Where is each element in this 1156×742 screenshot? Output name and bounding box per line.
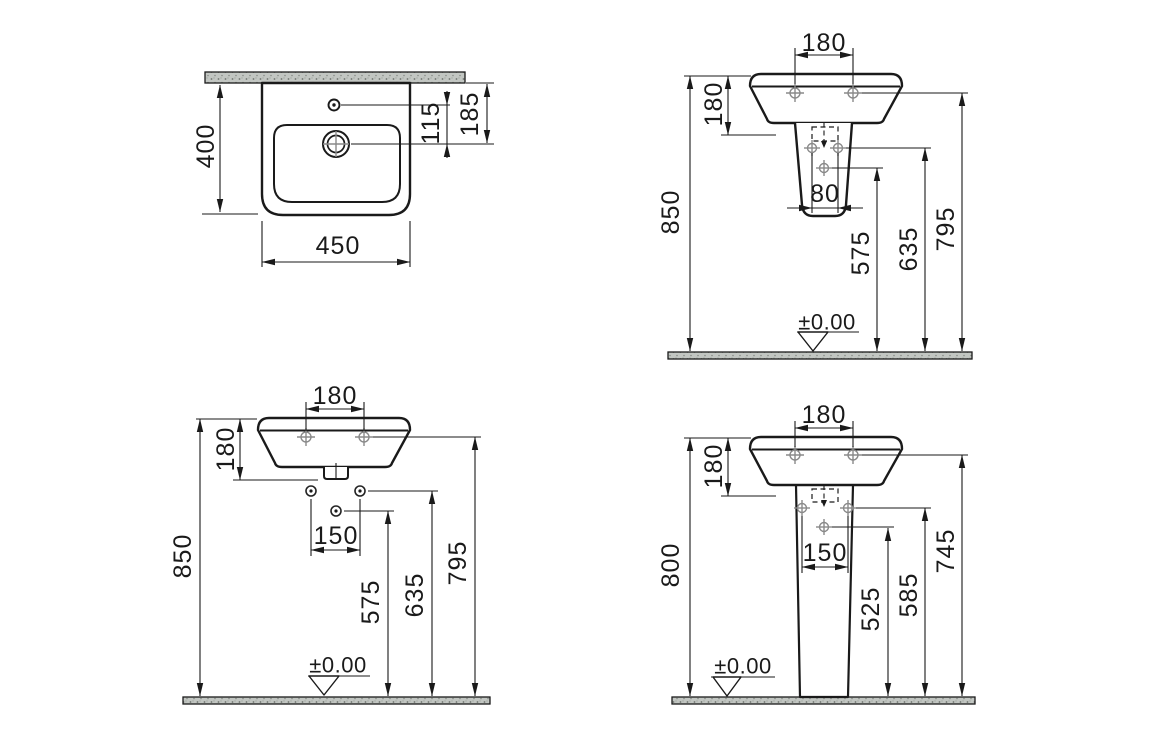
dim-label-wall-to-drain: 185 — [456, 92, 484, 137]
dim-label-ped-fixing-height: 585 — [895, 573, 923, 618]
dim-label-fixing-height: 795 — [444, 541, 472, 586]
dim-label-ped-span: 150 — [803, 539, 848, 567]
outlet-fixing-hole — [331, 506, 341, 516]
dim-label-fixing-span: 180 — [313, 382, 358, 410]
dim-label-tap-to-drain: 115 — [417, 102, 445, 145]
floor-section — [183, 697, 490, 704]
dim-label-rim-height: 850 — [657, 190, 685, 235]
dim-label-bracket-height: 635 — [401, 573, 429, 618]
dim-label-width: 450 — [316, 232, 361, 260]
dim-label-outlet-height: 525 — [857, 587, 885, 632]
dim-label-basin-depth: 180 — [700, 82, 728, 127]
pedestal-outline — [796, 485, 853, 697]
datum-label: ±0.00 — [798, 310, 855, 335]
dim-label-rim-height: 800 — [657, 543, 685, 588]
datum-triangle — [713, 677, 741, 696]
dim-label-outlet-height: 575 — [847, 231, 875, 276]
basin-outline-front — [258, 418, 410, 467]
wall-section — [205, 72, 465, 83]
dim-label-ped-fixing-height: 635 — [895, 227, 923, 272]
half-pedestal-view: 180 180 850 80 575 635 795 ±0.00 — [657, 29, 972, 359]
wall-hung-view: 180 180 850 150 575 635 795 ±0.00 — [169, 382, 490, 704]
datum-triangle — [309, 676, 339, 695]
datum-label: ±0.00 — [714, 654, 771, 679]
dim-label-fixing-span: 180 — [802, 401, 847, 429]
dim-label-fixing-span: 180 — [802, 29, 847, 57]
dim-label-basin-depth: 180 — [212, 427, 240, 472]
dim-label-fixing-height: 745 — [932, 529, 960, 574]
tap-hole-center — [332, 103, 335, 106]
dim-label-bracket-span: 150 — [314, 522, 359, 550]
datum-triangle — [798, 332, 828, 351]
dim-label-rim-height: 850 — [169, 534, 197, 579]
dim-label-ped-span: 80 — [810, 180, 840, 208]
basin-outline-front — [750, 437, 902, 485]
washbasin-dimension-drawing: 400 450 115 185 — [0, 0, 1156, 742]
technical-drawing-sheet: 400 450 115 185 — [0, 0, 1156, 742]
pedestal-view: 180 180 800 150 525 585 745 ±0.00 — [657, 401, 975, 704]
basin-outline-front — [750, 74, 902, 123]
dim-label-basin-depth: 180 — [700, 444, 728, 489]
dim-label-outlet-height: 575 — [357, 580, 385, 625]
plan-view: 400 450 115 185 — [192, 72, 494, 267]
bracket-holes — [306, 486, 365, 496]
dim-label-depth: 400 — [192, 124, 220, 169]
datum-label: ±0.00 — [309, 653, 366, 678]
floor-section — [668, 352, 972, 359]
dim-label-fixing-height: 795 — [932, 207, 960, 252]
